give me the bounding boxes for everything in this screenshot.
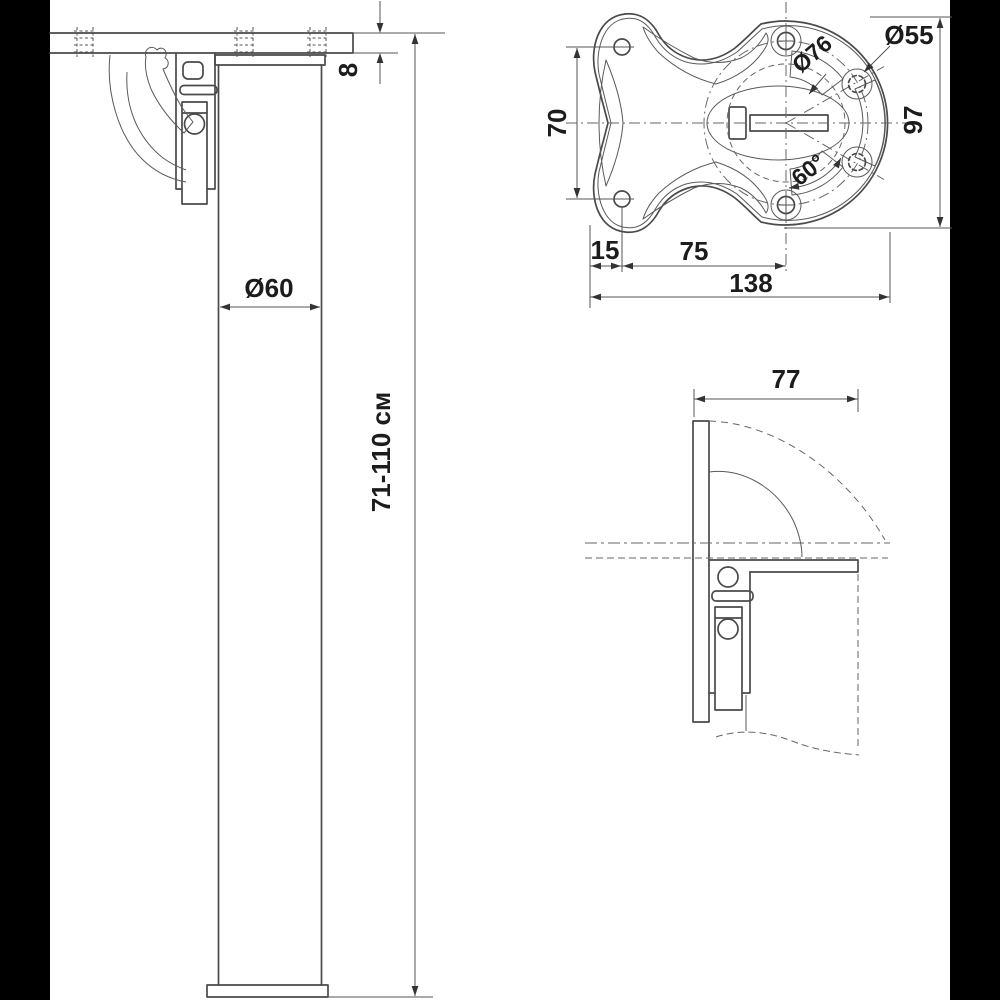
dim-fold-clearance: 77 xyxy=(772,364,801,394)
dim-height-range: 71-110 см xyxy=(366,392,396,512)
bracket-lower-hole xyxy=(185,114,205,134)
tube-collar xyxy=(215,55,325,65)
dim-edge-to-screw-hole: 15 xyxy=(591,235,620,265)
dim-flange-width: 97 xyxy=(898,106,928,135)
leg-foot xyxy=(207,985,328,997)
leg-side-view: 8 Ø60 71-110 см xyxy=(50,1,445,997)
dim-screw-hole-spacing: 70 xyxy=(542,109,572,138)
dim-plate-thickness: 8 xyxy=(333,63,363,77)
letterbox-right xyxy=(950,0,1000,1000)
folded-side-view: 77 xyxy=(585,364,890,755)
letterbox-left xyxy=(0,0,50,1000)
folding-bracket-folded xyxy=(709,567,753,731)
folding-bracket xyxy=(109,47,217,204)
mounting-plate-folded xyxy=(709,560,858,572)
bracket-housing-inner-arc xyxy=(127,72,186,170)
dim-screw-hole-to-center: 75 xyxy=(680,236,709,266)
plate-top-view: 70 97 15 75 138 Ø55 xyxy=(542,2,952,308)
dim-tube-diameter: Ø60 xyxy=(244,273,293,303)
bracket-slot xyxy=(180,86,217,95)
technical-drawing: 8 Ø60 71-110 см xyxy=(0,0,1000,1000)
center-lines xyxy=(566,2,912,272)
dim-bottom-group: 15 75 138 xyxy=(590,208,890,308)
dim-tube-diameter-group: Ø60 xyxy=(220,273,320,310)
dim-center-circle: Ø55 xyxy=(884,20,933,50)
mounting-plate-edge xyxy=(50,33,353,53)
dim-fold-clearance-group: 77 xyxy=(694,364,858,417)
dim-center-circle-group: Ø55 xyxy=(862,20,934,74)
break-line xyxy=(716,732,859,755)
dim-plate-thickness-group: 8 xyxy=(333,1,445,84)
fold-inner-arc xyxy=(709,471,802,557)
leg-tube xyxy=(219,65,322,985)
bracket-housing-outer-arc xyxy=(109,55,186,182)
table-leaf-edge xyxy=(693,421,709,722)
fold-sweep-arc xyxy=(709,421,885,540)
bracket-pivot-hole xyxy=(183,62,203,79)
dim-plate-length: 138 xyxy=(729,268,772,298)
dim-height-range-group: 71-110 см xyxy=(328,34,433,997)
drawing-canvas: 8 Ø60 71-110 см xyxy=(0,0,1000,1000)
